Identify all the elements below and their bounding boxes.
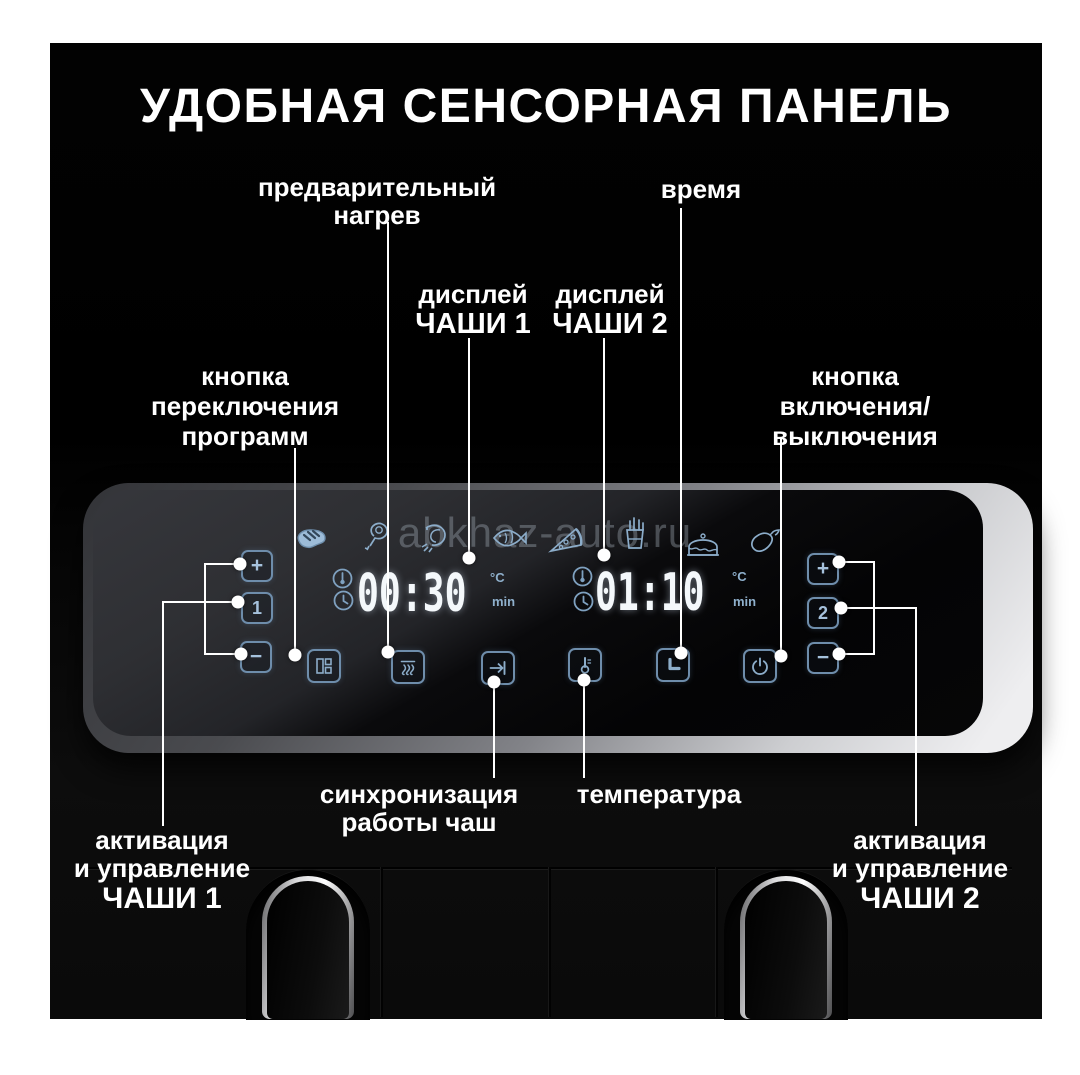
drawer-seam (380, 867, 383, 1017)
cake-icon (685, 529, 721, 559)
label-temperature: температура (577, 780, 741, 808)
dot-bowl2-select (835, 602, 848, 615)
dot-program (289, 649, 302, 662)
callout-line-program (294, 448, 296, 656)
dot-preheat (382, 646, 395, 659)
label-power: кнопка включения/ выключения (772, 361, 938, 451)
bowl1-lead-h (162, 601, 238, 603)
dot-temperature (578, 674, 591, 687)
handle-grip (745, 881, 827, 1019)
display-bowl2: 01:10 (595, 572, 705, 615)
page: УДОБНАЯ СЕНСОРНАЯ ПАНЕЛЬ abkhaz-auto.ru … (0, 0, 1080, 1075)
dot-bowl1-minus (235, 648, 248, 661)
display2-celsius-unit: °C (732, 569, 747, 584)
drawer-center-seam (548, 867, 551, 1017)
bowl2-lead-h (841, 607, 917, 609)
callout-line-time (680, 208, 682, 654)
pizza-icon (548, 524, 584, 556)
label-display2: дисплей ЧАШИ 2 (552, 280, 668, 340)
label-display1: дисплей ЧАШИ 1 (415, 280, 531, 340)
dot-sync (488, 676, 501, 689)
display1-celsius-unit: °C (490, 570, 505, 585)
callout-line-power (780, 437, 782, 658)
dot-power (775, 650, 788, 663)
program-grid-icon (314, 656, 334, 676)
bowl2-lead-v (915, 607, 917, 826)
callout-line-display2 (603, 338, 605, 557)
drawer-seam (715, 867, 718, 1017)
dot-display2 (598, 549, 611, 562)
handle-grip (267, 881, 349, 1019)
power-button[interactable] (743, 649, 777, 683)
label-bowl2: активация и управление ЧАШИ 2 (832, 826, 1008, 916)
bowl2-select-button[interactable]: 2 (807, 597, 839, 629)
dot-bowl2-minus (833, 648, 846, 661)
drawer1-handle[interactable] (262, 876, 354, 1019)
dot-time (675, 647, 688, 660)
dot-bowl1-select (232, 596, 245, 609)
time-indicator-icon (333, 590, 354, 611)
preheat-button[interactable] (391, 650, 425, 684)
callout-line-sync (493, 680, 495, 778)
callout-line-temperature (583, 678, 585, 778)
thermometer-icon (575, 655, 595, 675)
power-icon (750, 656, 770, 676)
drawer2-handle[interactable] (740, 876, 832, 1019)
time-indicator-icon (573, 591, 594, 612)
callout-line-display1 (468, 338, 470, 558)
callout-line-preheat (387, 222, 389, 652)
preheat-icon (398, 657, 418, 677)
display1-min-unit: min (492, 594, 515, 609)
bowl1-select-button[interactable]: 1 (241, 592, 273, 624)
label-sync: синхронизация работы чаш (320, 780, 518, 836)
dot-bowl2-plus (833, 556, 846, 569)
display-bowl1: 00:30 (357, 573, 467, 616)
label-time: время (661, 175, 741, 203)
dot-display1 (463, 552, 476, 565)
fries-icon (619, 515, 651, 551)
minus-glyph: − (250, 645, 262, 669)
plus-glyph: + (817, 557, 829, 581)
bowl1-number: 1 (252, 598, 262, 619)
dot-bowl1-plus (234, 558, 247, 571)
steak-icon (294, 523, 328, 555)
bowl1-lead-v (162, 601, 164, 826)
label-preheat: предварительный нагрев (258, 173, 496, 229)
display2-min-unit: min (733, 594, 756, 609)
temp-indicator-icon (332, 568, 353, 589)
minus-glyph: − (817, 646, 829, 670)
page-title: УДОБНАЯ СЕНСОРНАЯ ПАНЕЛЬ (50, 79, 1042, 134)
fish-icon (491, 523, 527, 553)
eggplant-icon (748, 525, 782, 555)
program-button[interactable] (307, 649, 341, 683)
temp-indicator-icon (572, 566, 593, 587)
shrimp-icon (418, 521, 452, 553)
plus-glyph: + (251, 554, 263, 578)
product-photo: УДОБНАЯ СЕНСОРНАЯ ПАНЕЛЬ abkhaz-auto.ru … (50, 43, 1042, 1019)
bowl2-number: 2 (818, 603, 828, 624)
label-program: кнопка переключения программ (151, 361, 339, 451)
bracket1-side (204, 563, 206, 655)
label-bowl1: активация и управление ЧАШИ 1 (74, 826, 250, 916)
